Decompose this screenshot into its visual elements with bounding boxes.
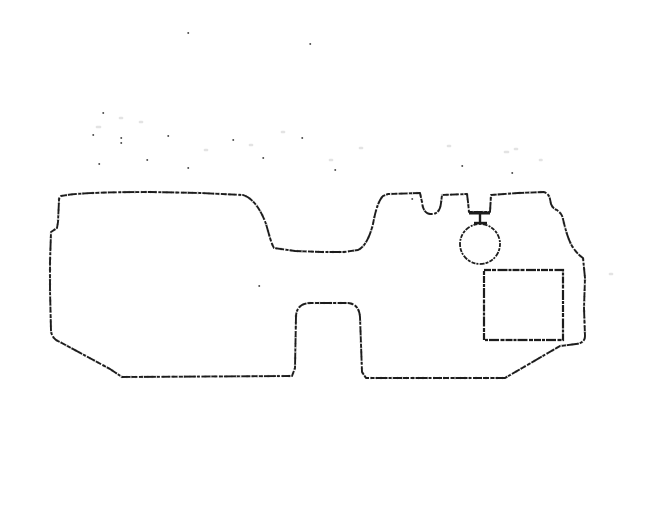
diagram-canvas: [0, 0, 656, 524]
part-outline: [50, 192, 585, 378]
access-panel-rectangle: [484, 270, 563, 340]
scanned-diagram-page: [0, 0, 656, 524]
scan-speckles-dark: [93, 33, 513, 286]
grommet-circle: [460, 224, 500, 264]
part-outline-texture: [50, 192, 585, 378]
